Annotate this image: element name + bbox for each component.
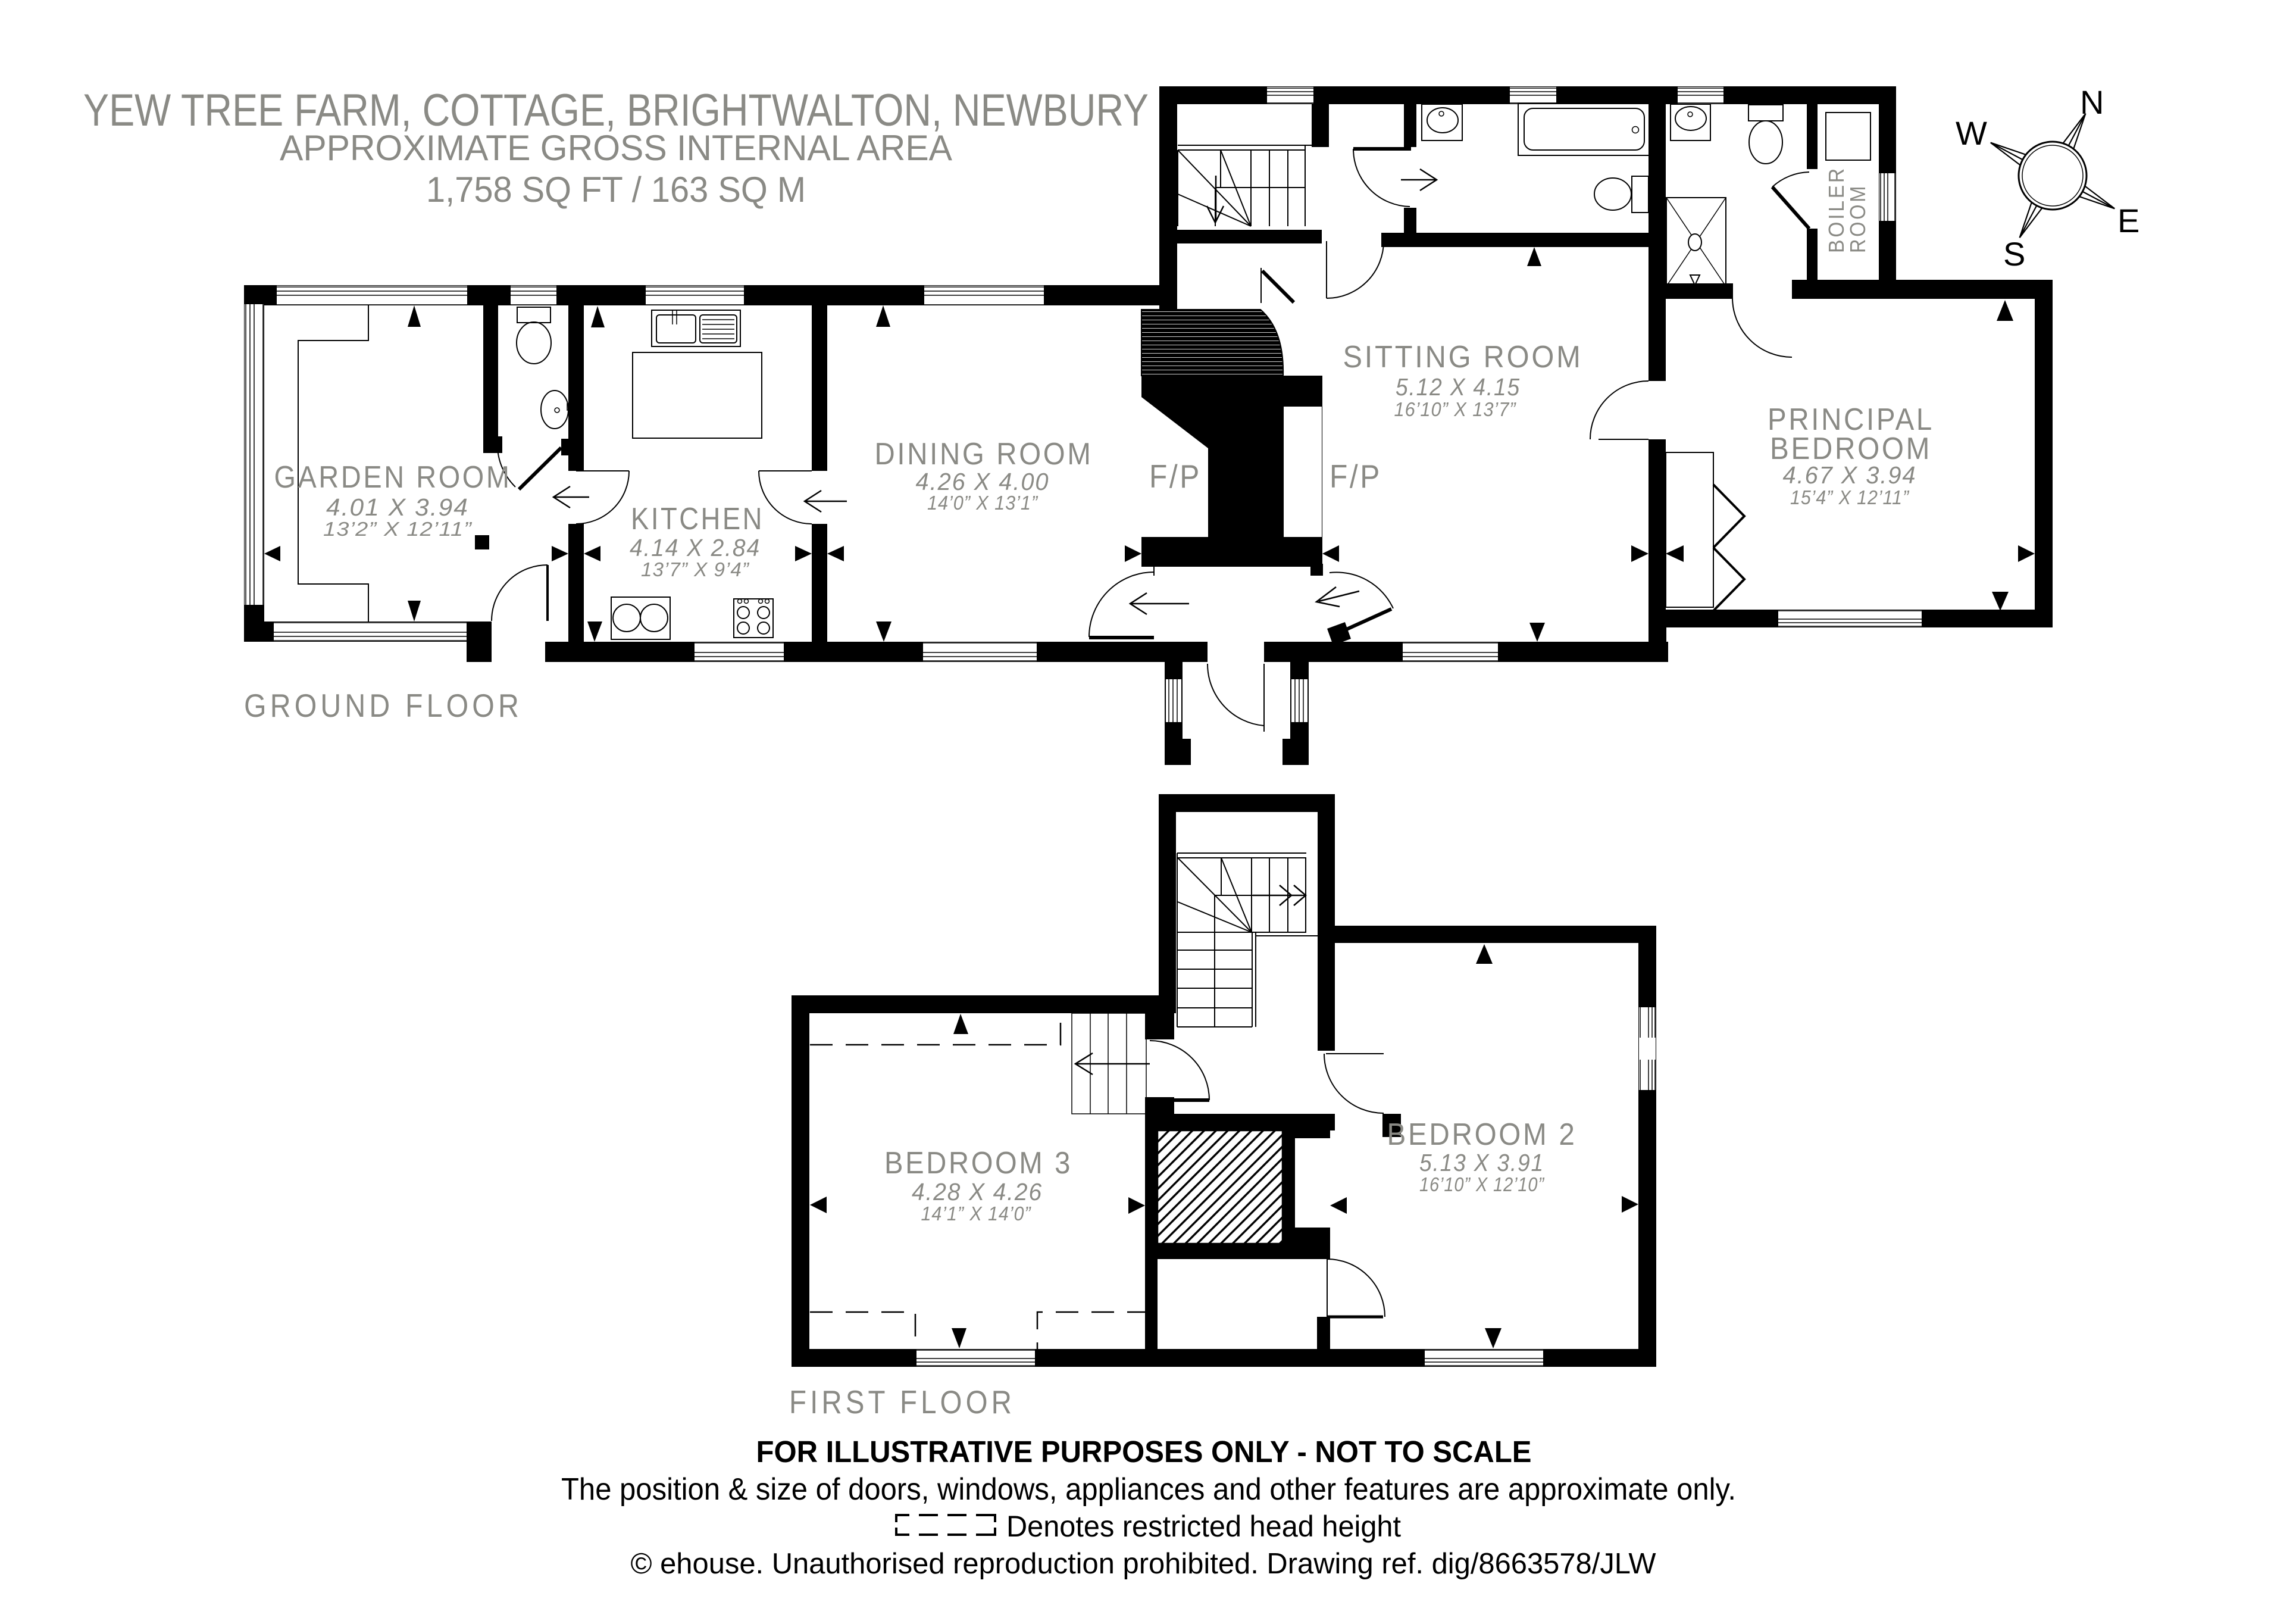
svg-text:FIRST FLOOR: FIRST FLOOR [789,1383,1015,1420]
svg-text:4.67 X 3.94: 4.67 X 3.94 [1783,461,1917,489]
svg-text:BOILER: BOILER [1824,166,1848,253]
svg-text:APPROXIMATE GROSS INTERNAL ARE: APPROXIMATE GROSS INTERNAL AREA [280,128,952,168]
svg-text:N: N [2080,83,2104,121]
svg-text:GARDEN ROOM: GARDEN ROOM [274,460,512,495]
svg-text:15’4” X 12’11”: 15’4” X 12’11” [1790,486,1910,508]
svg-text:BEDROOM 3: BEDROOM 3 [884,1146,1072,1180]
svg-text:5.13 X 3.91: 5.13 X 3.91 [1419,1149,1544,1176]
svg-text:ROOM: ROOM [1845,184,1870,253]
svg-text:E: E [2117,202,2139,239]
svg-text:16’10” X 13’7”: 16’10” X 13’7” [1394,398,1517,420]
svg-text:16’10” X 12’10”: 16’10” X 12’10” [1419,1173,1545,1195]
svg-text:W: W [1956,114,1987,152]
svg-text:GROUND FLOOR: GROUND FLOOR [244,687,523,724]
svg-text:The position & size of doors,: The position & size of doors, windows, a… [561,1472,1736,1507]
svg-text:4.01 X 3.94: 4.01 X 3.94 [326,494,469,521]
svg-text:F/P: F/P [1330,458,1382,495]
svg-text:4.14 X 2.84: 4.14 X 2.84 [630,534,761,561]
svg-text:F/P: F/P [1149,458,1202,495]
svg-text:13’2” X 12’11”: 13’2” X 12’11” [323,518,473,540]
svg-text:1,758 SQ FT / 163 SQ M: 1,758 SQ FT / 163 SQ M [426,170,806,210]
svg-text:S: S [2003,235,2025,273]
svg-text:KITCHEN: KITCHEN [631,502,764,536]
svg-text:14’1” X 14’0”: 14’1” X 14’0” [921,1203,1032,1225]
svg-text:5.12 X 4.15: 5.12 X 4.15 [1396,373,1521,401]
svg-text:4.28 X 4.26: 4.28 X 4.26 [912,1178,1043,1205]
svg-text:Denotes restricted head height: Denotes restricted head height [1006,1510,1401,1543]
svg-text:13’7” X 9’4”: 13’7” X 9’4” [641,558,750,580]
svg-text:DINING ROOM: DINING ROOM [875,437,1093,471]
svg-text:© ehouse. Unauthorised reprodu: © ehouse. Unauthorised reproduction proh… [631,1548,1657,1580]
svg-text:14’0” X 13’1”: 14’0” X 13’1” [927,492,1038,514]
svg-text:FOR ILLUSTRATIVE PURPOSES ONLY: FOR ILLUSTRATIVE PURPOSES ONLY - NOT TO … [756,1435,1532,1469]
svg-text:BEDROOM 2: BEDROOM 2 [1387,1117,1577,1152]
svg-text:SITTING ROOM: SITTING ROOM [1343,340,1583,374]
